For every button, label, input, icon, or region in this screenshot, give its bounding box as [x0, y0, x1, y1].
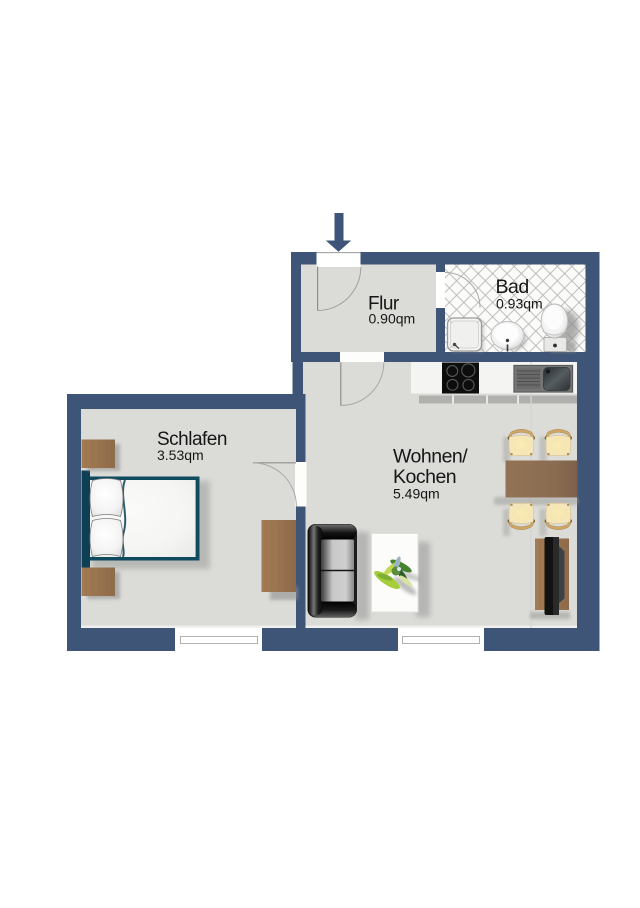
- svg-text:0.93qm: 0.93qm: [496, 296, 543, 312]
- svg-text:3.53qm: 3.53qm: [157, 447, 204, 463]
- svg-text:5.49qm: 5.49qm: [393, 485, 440, 501]
- svg-text:0.90qm: 0.90qm: [369, 311, 416, 327]
- svg-text:Wohnen/: Wohnen/: [393, 446, 468, 468]
